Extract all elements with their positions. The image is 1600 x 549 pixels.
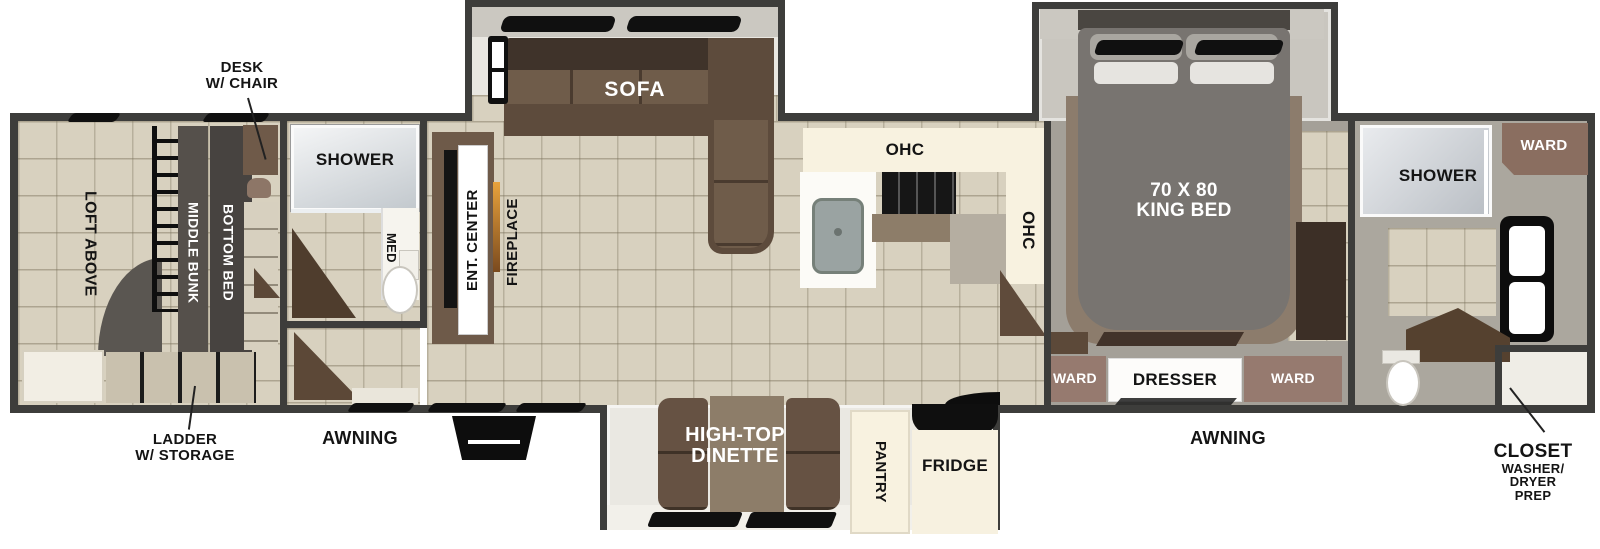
dinette-window-2	[745, 512, 837, 528]
range-cooktop	[882, 172, 956, 216]
dinette-window-1	[647, 512, 743, 527]
loft-above-label: LOFT ABOVE	[78, 160, 100, 328]
rear-shower-label: SHOWER	[1378, 166, 1498, 186]
sofa-chaise-cushion	[714, 120, 768, 248]
ward-left-label: WARD	[1044, 368, 1106, 388]
ohc-top-label: OHC	[850, 140, 960, 160]
bed-headboard	[1078, 10, 1290, 30]
kitchen-sink	[812, 198, 864, 274]
fridge-body	[912, 430, 998, 534]
rearbath-floor-tile	[1388, 228, 1496, 316]
king-slide-window-1	[1094, 40, 1185, 55]
king-bed-type: KING BED	[1136, 201, 1231, 221]
living-bottom-window-2	[427, 403, 507, 412]
dresser-label: DRESSER	[1110, 370, 1240, 390]
wall-midbath-right	[420, 121, 427, 328]
closet-callout-line2: DRYER	[1510, 475, 1557, 489]
closet-callout-line3: PREP	[1515, 489, 1552, 503]
loft-steps	[244, 202, 278, 350]
rv-floorplan: LOFT ABOVE MIDDLE BUNK BOTTOM BED SHOWER…	[0, 0, 1600, 549]
sofa-slide-window-1	[499, 16, 616, 32]
kitchen-counter-step	[950, 214, 1006, 284]
rear-toilet-bowl	[1386, 360, 1420, 406]
midbath-shower-label: SHOWER	[295, 150, 415, 170]
awning-right-label: AWNING	[1178, 428, 1278, 448]
dresser-shadow	[1115, 398, 1237, 405]
ohc-side-label: OHC	[1014, 192, 1042, 268]
rear-door-pane-bottom	[1509, 282, 1545, 334]
sink-drain	[834, 228, 842, 236]
tv	[444, 150, 457, 308]
med-label: MED	[382, 215, 400, 281]
entry-step-tread	[468, 440, 520, 444]
storage-bench	[22, 350, 104, 403]
desk-callout-line2: W/ CHAIR	[206, 76, 278, 92]
ward-right-label: WARD	[1246, 368, 1340, 388]
ladder-callout-line1: LADDER	[153, 432, 217, 448]
bed-bench	[1096, 332, 1244, 346]
fireplace-label: FIREPLACE	[501, 175, 525, 310]
awning-left-label: AWNING	[310, 428, 410, 448]
closet-callout: CLOSET WASHER/ DRYER PREP	[1473, 434, 1593, 510]
sofa-label: SOFA	[575, 78, 695, 102]
desk-callout-line1: DESK	[221, 60, 264, 76]
pillow-light-right	[1190, 62, 1274, 84]
dinette-line1: HIGH-TOP	[685, 425, 785, 446]
fridge-label: FRIDGE	[914, 456, 996, 476]
king-slide-window-2	[1194, 40, 1285, 55]
king-bed-label: 70 X 80 KING BED	[1109, 180, 1259, 222]
bunkroom-window-left	[67, 113, 121, 122]
ent-center-label: ENT. CENTER	[461, 148, 485, 333]
nightstand	[1048, 332, 1088, 354]
wall-bunkroom-right	[280, 121, 287, 405]
wall-closet-left	[1495, 345, 1502, 405]
king-bed-size: 70 X 80	[1150, 181, 1218, 201]
ladder-callout: LADDER W/ STORAGE	[125, 430, 245, 466]
pantry-label: PANTRY	[868, 418, 892, 526]
bottom-bed-label: BOTTOM BED	[218, 172, 238, 332]
entry-step-exterior	[452, 416, 536, 460]
fireplace-flame	[493, 182, 500, 272]
tall-wardrobe	[1296, 222, 1346, 340]
closet-floor	[1502, 352, 1587, 405]
rear-ward-label: WARD	[1500, 136, 1588, 156]
pillow-light-left	[1094, 62, 1178, 84]
wall-kitchen-bedroom	[1044, 121, 1051, 405]
ladder-storage-cubbies	[106, 352, 256, 403]
sofa-slide-window-2	[625, 16, 742, 32]
bunkroom-window-right	[202, 113, 270, 122]
ladder-callout-line2: W/ STORAGE	[135, 448, 234, 464]
rear-door-pane-top	[1509, 226, 1545, 276]
sofa-slide-side-window-pane	[492, 42, 504, 68]
living-bottom-window-3	[515, 403, 587, 412]
desk-callout: DESK W/ CHAIR	[183, 58, 301, 94]
wall-closet-top	[1495, 345, 1587, 352]
sofa-slide-side-window-pane2	[492, 72, 504, 98]
wall-midbath-bottom	[280, 321, 427, 328]
wall-bedroom-rearbath	[1348, 121, 1355, 405]
desk	[243, 125, 278, 175]
closet-callout-title: CLOSET	[1494, 442, 1573, 462]
entry-step	[352, 388, 418, 404]
middle-bunk-label: MIDDLE BUNK	[183, 170, 203, 336]
desk-chair	[247, 178, 271, 198]
dinette-line2: DINETTE	[691, 446, 779, 467]
closet-callout-line1: WASHER/	[1502, 462, 1565, 476]
living-bottom-window-1	[347, 403, 415, 412]
dinette-label: HIGH-TOP DINETTE	[650, 424, 820, 468]
